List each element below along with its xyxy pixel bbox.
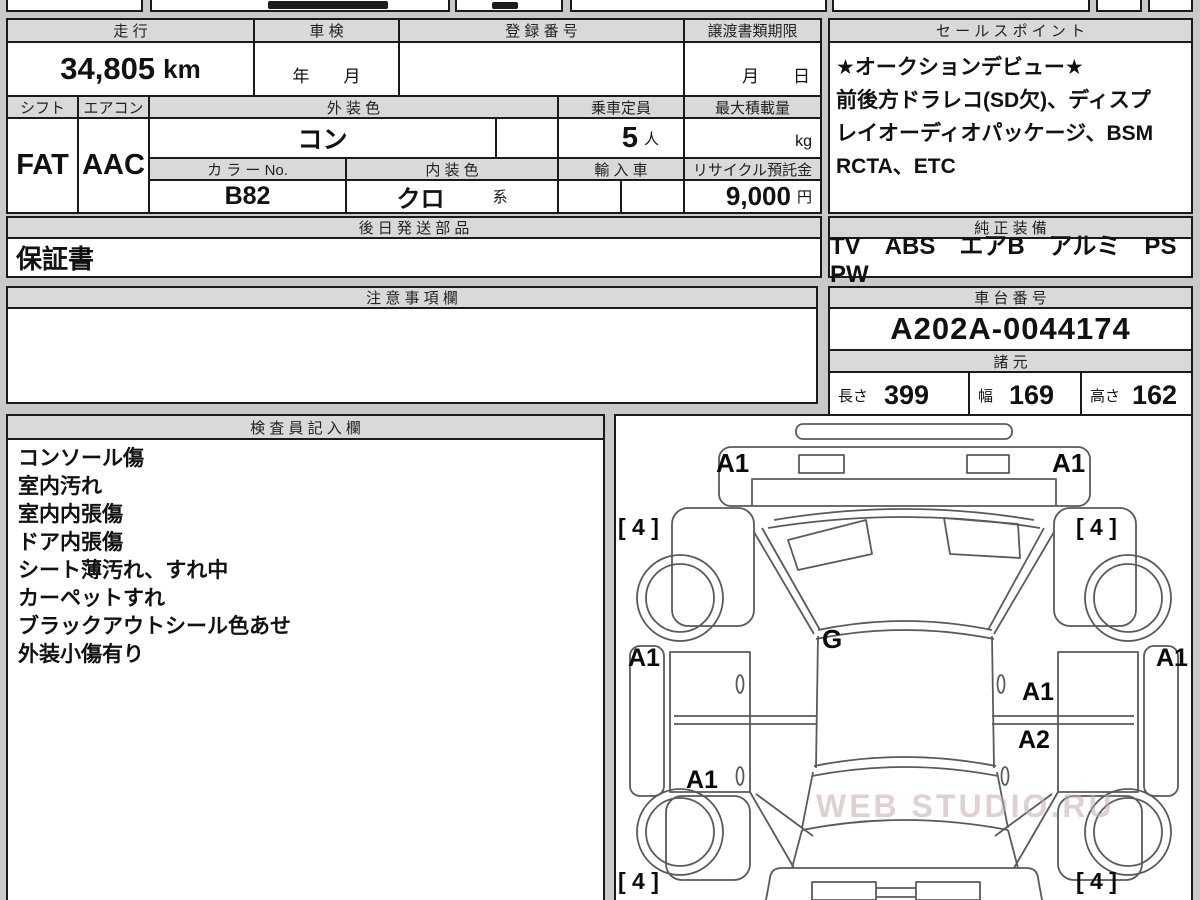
interior-color-suffix: 系 [492,186,507,207]
inspector-content: コンソール傷 室内汚れ 室内内張傷 ドア内張傷 シート薄汚れ、すれ中 カーペット… [6,438,605,900]
inspector-line: カーペットすれ [18,585,593,613]
inspector-line: 室内内張傷 [18,501,593,529]
car-top-view-diagram [616,416,1191,900]
mileage-header: 走 行 [6,18,255,43]
car-diagram-panel: WEB STUDIO.RU A1 A1 [ 4 ] [ 4 ] A1 A1 G … [614,414,1193,900]
damage-label-rocker-left: A1 [628,644,660,673]
mileage-unit: km [163,54,201,85]
exterior-color-sub-cell [495,117,559,159]
damage-label-door-left-lower: A1 [686,766,718,795]
sales-point-line: レイオーディオパッケージ、BSM [836,117,1185,150]
cutoff-cell [1096,0,1142,12]
shaken-value-cell: 年 月 [253,41,400,97]
damage-label-front-wheel-right: [ 4 ] [1076,514,1117,541]
color-no-header: カ ラ ー No. [148,157,347,181]
transfer-value-cell: 月 日 [683,41,822,97]
chassis-number-header: 車 台 番 号 [828,286,1193,309]
capacity-value: 5 [622,122,638,155]
shift-value: FAT [6,117,79,214]
cutoff-text-fragment [492,2,518,9]
sales-point-line: RCTA、ETC [836,150,1185,183]
inspector-line: 室内汚れ [18,473,593,501]
specs-header: 諸 元 [828,349,1193,373]
max-load-header: 最大積載量 [683,95,822,119]
capacity-unit: 人 [644,128,659,149]
capacity-value-cell: 5 人 [557,117,685,159]
watermark: WEB STUDIO.RU [816,788,1115,825]
capacity-header: 乗車定員 [557,95,685,119]
spec-height-value: 162 [1132,380,1177,411]
inspector-line: シート薄汚れ、すれ中 [18,557,593,585]
shaken-header: 車 検 [253,18,400,43]
damage-label-front-wheel-left: [ 4 ] [618,514,659,541]
inspector-line: コンソール傷 [18,445,593,473]
interior-color-header: 内 装 色 [345,157,559,181]
chassis-number-value: A202A-0044174 [828,307,1193,351]
auction-sheet: 走 行 車 検 登 録 番 号 譲渡書類期限 34,805 km 年 月 月 日… [0,0,1200,900]
transfer-value: 月 日 [742,62,810,87]
spec-length-value: 399 [884,380,929,411]
color-no-value: B82 [148,179,347,214]
cutoff-text-fragment [268,1,388,9]
spec-length-label: 長さ [838,385,868,406]
recycle-value: 9,000 [726,181,791,212]
damage-label-roof: G [822,624,842,655]
cutoff-cell [1148,0,1193,12]
interior-color-value: クロ [396,179,444,214]
cutoff-cell [832,0,1090,12]
spec-width-cell: 幅 169 [968,371,1082,420]
max-load-cell: kg [683,117,822,159]
exterior-color-value: コン [148,117,497,159]
caution-notes-content [6,307,818,404]
import-cell-2 [620,179,685,214]
damage-label-door-right-lower: A2 [1018,726,1050,755]
registration-header: 登 録 番 号 [398,18,685,43]
transfer-deadline-header: 譲渡書類期限 [683,18,822,43]
shaken-value: 年 月 [293,62,361,87]
inspector-line: ブラックアウトシール色あせ [18,613,593,641]
cutoff-cell [6,0,143,12]
spec-height-cell: 高さ 162 [1080,371,1193,420]
import-header: 輸 入 車 [557,157,685,181]
caution-notes-header: 注 意 事 項 欄 [6,286,818,309]
damage-label-front-left: A1 [716,448,749,479]
cutoff-cell [570,0,827,12]
later-parts-content: 保証書 [6,237,822,278]
spec-height-label: 高さ [1090,385,1120,406]
spec-width-value: 169 [1009,380,1054,411]
aircon-value: AAC [77,117,150,214]
shift-header: シフト [6,95,79,119]
damage-label-rocker-right: A1 [1156,644,1188,673]
recycle-unit: 円 [797,186,812,207]
sales-point-line: ★オークションデビュー★ [836,51,1185,84]
interior-color-cell: クロ 系 [345,179,559,214]
max-load-unit: kg [795,133,812,151]
mileage-value-cell: 34,805 km [6,41,255,97]
spec-length-cell: 長さ 399 [828,371,970,420]
import-cell-1 [557,179,622,214]
recycle-header: リサイクル預託金 [683,157,822,181]
inspector-header: 検 査 員 記 入 欄 [6,414,605,440]
sales-point-content: ★オークションデビュー★ 前後方ドラレコ(SD欠)、ディスプ レイオーディオパッ… [828,41,1193,214]
sales-point-line: 前後方ドラレコ(SD欠)、ディスプ [836,84,1185,117]
registration-value-cell [398,41,685,97]
damage-label-rear-wheel-left: [ 4 ] [618,868,659,895]
damage-label-rear-wheel-right: [ 4 ] [1076,868,1117,895]
inspector-line: 外装小傷有り [18,641,593,669]
mileage-value: 34,805 [60,51,155,87]
aircon-header: エアコン [77,95,150,119]
recycle-cell: 9,000 円 [683,179,822,214]
later-parts-header: 後 日 発 送 部 品 [6,216,822,239]
damage-label-front-right: A1 [1052,448,1085,479]
equipment-content: TV ABS エアB アルミ PS PW [828,237,1193,278]
spec-width-label: 幅 [978,385,993,406]
inspector-line: ドア内張傷 [18,529,593,557]
sales-point-header: セ ー ル ス ポ イ ン ト [828,18,1193,43]
damage-label-door-right-upper: A1 [1022,678,1054,707]
exterior-color-header: 外 装 色 [148,95,559,119]
